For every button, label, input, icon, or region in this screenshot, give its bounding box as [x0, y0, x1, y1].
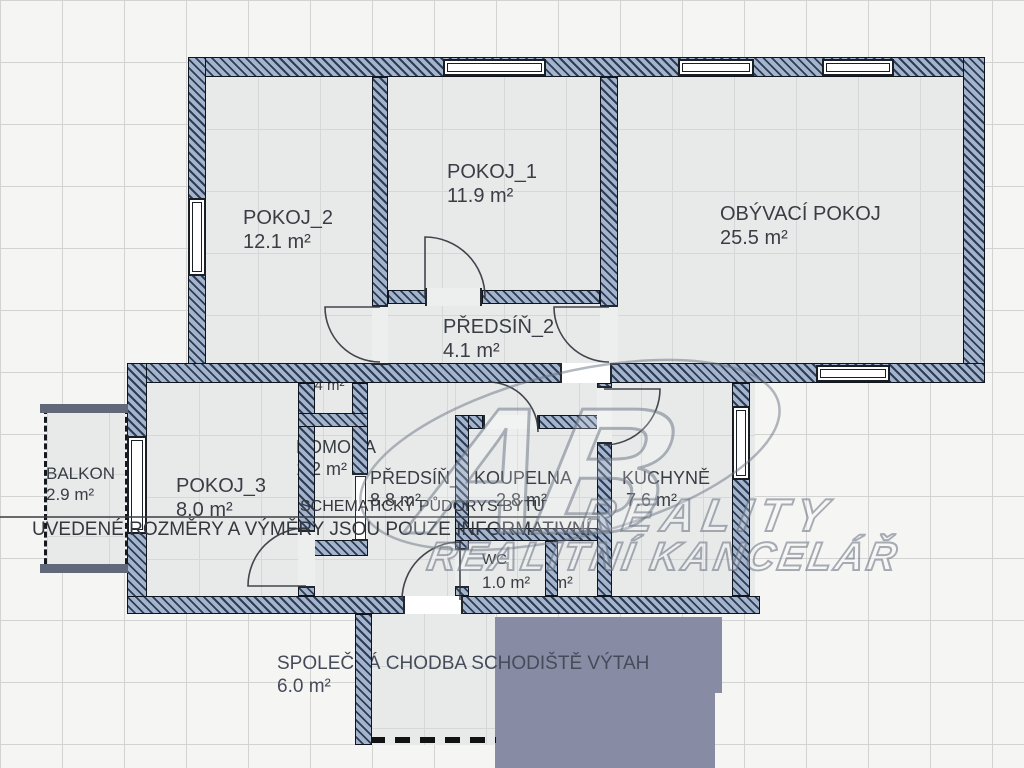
- room-name: SPOLEČNÁ CHODBA SCHODIŠTĚ VÝTAH: [277, 652, 649, 675]
- door-opening-pokoj1: [425, 288, 482, 306]
- room-area: 12.1 m²: [243, 230, 333, 254]
- room-label-pokoj1: POKOJ_1 11.9 m²: [447, 160, 537, 209]
- room-label-pokoj2: POKOJ_2 12.1 m²: [243, 206, 333, 255]
- note-disclaimer: UVEDENÉ ROZMĚRY A VÝMĚRY JSOU POUZE INFO…: [32, 519, 591, 541]
- room-area: 6.0 m²: [277, 675, 649, 698]
- wall-right: [963, 57, 985, 383]
- door-opening-wc: [455, 548, 469, 588]
- wall-wc-divider: [545, 541, 558, 596]
- room-area: 4.1 m²: [443, 339, 554, 363]
- room-name: POKOJ_1: [447, 160, 537, 184]
- balkon-dashed-edge: [44, 408, 128, 573]
- room-label-spolecna-chodba: SPOLEČNÁ CHODBA SCHODIŠTĚ VÝTAH 6.0 m²: [277, 652, 649, 698]
- window-pokoj1-top: [443, 59, 546, 76]
- window-kuchyne-right: [732, 406, 750, 480]
- balkon-rail-bottom: [40, 564, 128, 573]
- room-area: 7.6 m²: [626, 490, 710, 512]
- door-opening-entrance: [403, 596, 463, 614]
- wall-nika-komora: [298, 413, 368, 427]
- stairwell-block-lower: [495, 693, 715, 768]
- window-obyvaci-top-2: [822, 59, 894, 76]
- room-label-pokoj3: POKOJ_3 8.0 m²: [176, 474, 266, 523]
- room-name: WC: [482, 551, 530, 569]
- room-label-kuchyne: KUCHYNĚ 7.6 m²: [622, 468, 710, 512]
- wall-pokoj1-predsin2-b: [482, 290, 600, 304]
- door-opening-predsin2-hala: [560, 363, 612, 383]
- room-area: 25.5 m²: [720, 226, 881, 250]
- room-area: 1.0 m²: [482, 573, 530, 594]
- wall-pokoj1-predsin2-a: [388, 290, 428, 304]
- window-obyvaci-bottom: [816, 365, 890, 382]
- door-opening-pokoj2: [372, 305, 388, 365]
- window-pokoj2-left: [188, 198, 206, 276]
- wall-pokoj1-obyvaci: [600, 77, 618, 308]
- room-name: KUCHYNĚ: [622, 468, 710, 490]
- room-name: POKOJ_2: [243, 206, 333, 230]
- floor-plan: POKOJ_1 11.9 m² POKOJ_2 12.1 m² OBÝVACÍ …: [0, 0, 1024, 768]
- room-name: KOUPELNA: [474, 468, 572, 490]
- room-label-wc: WC 1.0 m²: [482, 551, 530, 594]
- balkon-rail-top: [40, 404, 128, 413]
- room-name: POKOJ_3: [176, 474, 266, 498]
- room-name: PŘEDSÍŇ_2: [443, 315, 554, 339]
- wall-corridor: [355, 614, 372, 745]
- window-obyvaci-top-1: [678, 59, 754, 76]
- corridor-dashed-boundary: [370, 737, 496, 743]
- room-label-obyvaci-pokoj: OBÝVACÍ POKOJ 25.5 m²: [720, 202, 881, 251]
- room-name: OBÝVACÍ POKOJ: [720, 202, 881, 226]
- room-label-predsin2: PŘEDSÍŇ_2 4.1 m²: [443, 315, 554, 364]
- door-opening-koupelna: [483, 415, 539, 429]
- door-opening-obyvaci: [600, 305, 618, 365]
- wall-pokoj2-pokoj1: [372, 77, 388, 308]
- room-area: 11.9 m²: [447, 184, 537, 208]
- door-opening-kuchyne: [597, 386, 612, 444]
- note-schematic: SCHEMATICKÝ PŮDORYS BYTU: [300, 498, 545, 516]
